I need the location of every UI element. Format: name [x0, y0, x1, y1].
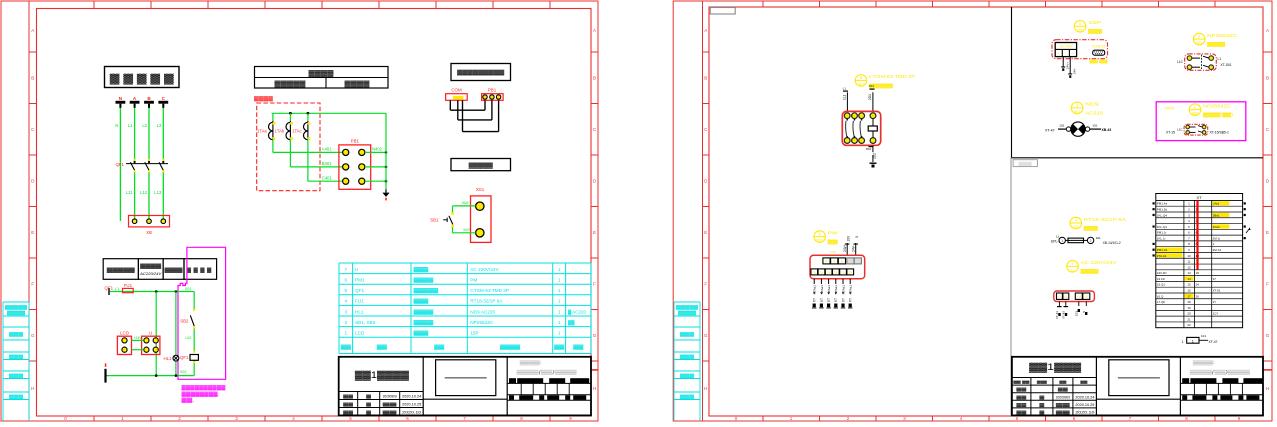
svg-text:L1C: L1C [1177, 128, 1183, 132]
svg-text:18: 18 [1196, 271, 1200, 275]
svg-text:B: B [593, 75, 596, 80]
svg-text:F: F [593, 281, 596, 286]
svg-text:13: 13 [1187, 271, 1191, 275]
svg-text:1KL.Q4: 1KL.Q4 [1157, 213, 1168, 217]
svg-text:RT18-32/1P 6A: RT18-32/1P 6A [470, 299, 503, 304]
svg-text:PB1: PB1 [488, 88, 497, 93]
svg-text:15P: 15P [470, 331, 478, 336]
svg-text:B: B [704, 75, 707, 80]
svg-text:1: 1 [1182, 340, 1184, 344]
svg-text:20200909: 20200909 [383, 394, 397, 398]
svg-text:20200909: 20200909 [1056, 396, 1070, 400]
svg-text:1L1: 1L1 [843, 94, 847, 100]
svg-text:B: B [31, 75, 34, 80]
svg-text:▓▓: ▓▓ [1059, 380, 1067, 384]
svg-text:1KL.Q1: 1KL.Q1 [1157, 225, 1168, 229]
svg-text:24V-: 24V- [851, 245, 855, 252]
svg-text:ND9 AC220: ND9 AC220 [470, 309, 495, 314]
svg-text:QF1: QF1 [858, 82, 865, 86]
svg-text:XT: XT [820, 298, 824, 302]
svg-text:▓▓▓: ▓▓▓ [1037, 380, 1048, 384]
svg-text:1: 1 [558, 267, 561, 272]
svg-text:2Ca1: 2Ca1 [1213, 225, 1221, 229]
svg-text:+: + [1072, 52, 1074, 56]
svg-text:N: N [115, 123, 118, 128]
svg-text:PM: PM [470, 278, 477, 283]
svg-text:7: 7 [344, 267, 347, 272]
svg-text:▓▓▓▓▓: ▓▓▓▓▓ [414, 287, 439, 294]
svg-text:1CY: 1CY [1213, 312, 1219, 316]
svg-text:101: 101 [1092, 124, 1097, 128]
svg-text:▓▓▓▓: ▓▓▓▓ [414, 308, 434, 315]
svg-text:AC 220V/24V: AC 220V/24V [1081, 260, 1117, 265]
svg-text:▓▓ ▓▓: ▓▓ ▓▓ [1090, 59, 1109, 64]
svg-text:1M.1r: 1M.1r [1213, 236, 1221, 240]
svg-text:FU1: FU1 [355, 299, 364, 304]
svg-text:6: 6 [344, 278, 347, 283]
svg-text:L12: L12 [140, 190, 148, 195]
svg-text:15P: 15P [1088, 20, 1101, 25]
svg-text:102: 102 [1059, 124, 1064, 128]
svg-text:HL1: HL1 [1074, 110, 1080, 114]
svg-text:L4a1: L4a1 [1213, 202, 1220, 206]
svg-text:X01: X01 [185, 287, 192, 291]
svg-text:QF1: QF1 [355, 288, 365, 293]
svg-text:B401: B401 [322, 161, 332, 166]
svg-text:XS1: XS1 [476, 187, 485, 192]
svg-text:L5.Q1: L5.Q1 [1157, 283, 1166, 287]
svg-text:L1: L1 [128, 123, 133, 128]
svg-text:▓ ▓ ▓ ▓ ▓: ▓ ▓ ▓ ▓ ▓ [110, 73, 175, 84]
svg-text:XB: XB [146, 230, 152, 235]
svg-text:10: 10 [1196, 254, 1200, 258]
svg-text:5: 5 [855, 236, 859, 238]
svg-text:PM: PM [830, 250, 835, 254]
svg-text:1Y: 1Y [1213, 300, 1217, 304]
svg-text:SB1: SB1 [430, 218, 439, 223]
svg-text:2020.10.24: 2020.10.24 [1075, 396, 1094, 400]
svg-text:L: L [1058, 295, 1060, 299]
svg-text:L02: L02 [185, 336, 191, 340]
svg-text:PM1.A1: PM1.A1 [1157, 248, 1168, 252]
svg-text:1: 1 [1061, 239, 1063, 243]
svg-text:+24V: +24V [134, 336, 143, 340]
svg-text:DC 24V: DC 24V [1060, 45, 1073, 49]
svg-text:NP2554ZC: NP2554ZC [470, 320, 494, 325]
svg-text:XT: XT [834, 298, 838, 302]
svg-text:F: F [704, 281, 707, 286]
svg-text:FU1: FU1 [124, 283, 133, 288]
svg-text:1a: 1a [827, 271, 831, 275]
svg-text:21: 21 [1187, 317, 1191, 321]
svg-text:XT-15/1: XT-15/1 [1221, 63, 1232, 67]
svg-text:SB2: SB2 [180, 318, 189, 323]
svg-text:11: 11 [1187, 260, 1190, 264]
svg-text:SB1: SB1 [1196, 41, 1203, 45]
svg-text:1: 1 [558, 288, 561, 293]
svg-text:PM1.4a: PM1.4a [1157, 202, 1168, 206]
svg-text:E: E [31, 230, 34, 235]
svg-text:L6.Q: L6.Q [1157, 294, 1164, 298]
svg-text:▓▓▓▓: ▓▓▓▓ [140, 263, 162, 270]
svg-text:HL1: HL1 [355, 309, 364, 314]
svg-text:▓▓▓▓: ▓▓▓▓ [414, 319, 434, 326]
svg-text:L1C: L1C [1177, 60, 1184, 64]
svg-text:▓▓▓▓: ▓▓▓▓ [187, 267, 214, 274]
svg-text:A401: A401 [322, 147, 332, 152]
svg-text:AC220: AC220 [1085, 110, 1104, 115]
svg-text:XT-47: XT-47 [1209, 340, 1218, 344]
svg-text:PM1.1r: PM1.1r [1157, 231, 1167, 235]
svg-text:PM1: PM1 [355, 278, 365, 283]
svg-text:103: 103 [847, 236, 851, 242]
svg-text:XT: XT [849, 298, 853, 302]
svg-text:▓▓: ▓▓ [1080, 380, 1088, 384]
svg-text:26: 26 [1196, 294, 1200, 298]
svg-text:XT: XT [813, 298, 817, 302]
svg-text:NP2554ZC: NP2554ZC [1207, 33, 1237, 38]
svg-text:X02: X02 [180, 370, 187, 374]
svg-text:+: + [1058, 52, 1060, 56]
svg-text:H: H [704, 386, 707, 391]
svg-text:E: E [704, 230, 707, 235]
svg-text:1: 1 [558, 320, 561, 325]
svg-text:A: A [593, 28, 596, 33]
svg-text:3: 3 [344, 309, 347, 314]
svg-text:24: 24 [1196, 283, 1200, 287]
svg-text:1: 1 [1192, 339, 1194, 343]
svg-text:1KL.1r: 1KL.1r [1157, 236, 1166, 240]
svg-text:H: H [31, 386, 34, 391]
svg-text:A: A [31, 28, 34, 33]
svg-text:12: 12 [1187, 265, 1191, 269]
svg-text:18: 18 [1187, 300, 1191, 304]
svg-text:24V+: 24V+ [1066, 62, 1070, 69]
svg-text:QF1: QF1 [180, 355, 189, 360]
svg-text:▓▓▓▓: ▓▓▓▓ [500, 344, 521, 351]
svg-text:▓▓: ▓▓ [573, 344, 584, 351]
svg-text:2020.10: 2020.10 [402, 410, 421, 414]
svg-text:1: 1 [558, 331, 561, 336]
svg-text:1a: 1a [820, 271, 824, 275]
svg-text:1a: 1a [812, 271, 816, 275]
svg-text:1TAc: 1TAc [292, 129, 301, 134]
svg-text:10: 10 [1187, 254, 1191, 258]
svg-text:▓▓: ▓▓ [434, 344, 445, 351]
svg-text:1: 1 [344, 331, 347, 336]
svg-text:XB-43: XB-43 [1102, 128, 1112, 132]
svg-text:▓▓: ▓▓ [377, 344, 388, 351]
svg-text:C401: C401 [322, 175, 333, 180]
svg-text:X06: X06 [462, 200, 470, 205]
svg-text:LCD: LCD [1077, 28, 1084, 32]
svg-text:▓▓1▓▓▓: ▓▓1▓▓▓ [1029, 362, 1082, 373]
svg-text:101: 101 [1096, 236, 1101, 240]
svg-text:L2: L2 [142, 123, 147, 128]
svg-text:24V+: 24V+ [843, 244, 847, 252]
svg-text:14: 14 [1187, 277, 1191, 281]
svg-text:▒▒▒: ▒▒▒ [1019, 161, 1032, 166]
svg-text:1a: 1a [841, 271, 845, 275]
svg-text:+: + [849, 260, 851, 264]
svg-text:A: A [704, 28, 707, 33]
svg-text:QF1: QF1 [115, 162, 124, 167]
svg-text:37: 37 [1213, 277, 1217, 281]
svg-text:H: H [1266, 386, 1269, 391]
svg-text:NP2554ZC: NP2554ZC [1203, 104, 1231, 109]
svg-text:19: 19 [1187, 306, 1191, 310]
svg-text:▓▓: ▓▓ [554, 344, 565, 351]
svg-text:AC 220V/24V: AC 220V/24V [470, 267, 499, 272]
svg-text:16: 16 [1187, 288, 1191, 292]
svg-text:2: 2 [344, 320, 347, 325]
svg-text:RT18-32/1P 6A: RT18-32/1P 6A [1084, 217, 1126, 222]
svg-text:17: 17 [1187, 294, 1191, 298]
svg-text:L3: L3 [157, 123, 162, 128]
svg-text:XT: XT [1196, 195, 1202, 200]
svg-text:XT-47: XT-47 [1045, 129, 1055, 133]
svg-text:▓▓▓▓: ▓▓▓▓ [309, 70, 335, 77]
svg-text:G: G [593, 333, 597, 338]
svg-text:A: A [1266, 28, 1269, 33]
svg-text:COM: COM [451, 88, 462, 93]
svg-text:15: 15 [1187, 283, 1191, 287]
svg-text:XT-15: XT-15 [1166, 131, 1175, 135]
svg-text:QF1: QF1 [105, 286, 114, 291]
svg-text:X07: X07 [463, 227, 471, 232]
svg-text:PM1: PM1 [816, 239, 823, 243]
svg-text:F: F [31, 281, 34, 286]
svg-text:E: E [593, 230, 596, 235]
svg-text:1TAb: 1TAb [275, 129, 285, 134]
svg-text:L13: L13 [154, 190, 162, 195]
svg-text:11: 11 [1056, 235, 1059, 239]
svg-text:L1: L1 [115, 287, 119, 291]
svg-text:▓▓▓▓▓: ▓▓▓▓▓ [275, 80, 307, 87]
svg-text:+V: +V [1077, 295, 1082, 299]
svg-text:L1: L1 [843, 87, 847, 91]
svg-text:L11: L11 [126, 190, 133, 195]
svg-text:▓▓▓: ▓▓▓ [414, 330, 430, 337]
svg-text:1TAa: 1TAa [257, 129, 267, 134]
svg-text:▓▓▓: ▓▓▓ [414, 298, 430, 305]
svg-text:SB1, SB2: SB1, SB2 [355, 320, 376, 325]
svg-text:2D2: 2D2 [873, 153, 877, 159]
svg-text:1: 1 [558, 309, 561, 314]
svg-text:LCD: LCD [355, 331, 365, 336]
svg-text:H: H [593, 386, 596, 391]
svg-text:LCD: LCD [120, 330, 129, 335]
svg-text:L7.Q6: L7.Q6 [1157, 300, 1166, 304]
svg-text:X01: X01 [869, 84, 875, 88]
svg-text:1a: 1a [848, 271, 852, 275]
svg-text:FU1: FU1 [1073, 225, 1080, 229]
svg-text:5: 5 [344, 288, 347, 293]
svg-text:XS05: XS05 [1164, 106, 1175, 111]
svg-text:G: G [1266, 333, 1270, 338]
svg-text:▓▓1▓▓▓▓: ▓▓1▓▓▓▓ [355, 370, 410, 381]
svg-text:1a: 1a [834, 271, 838, 275]
svg-text:E: E [1266, 230, 1269, 235]
svg-text:ND9: ND9 [1085, 102, 1100, 107]
svg-text:▓▓▓▓: ▓▓▓▓ [414, 277, 434, 284]
svg-text:AC220/24V: AC220/24V [139, 271, 161, 276]
svg-text:2D1: 2D1 [868, 94, 872, 100]
svg-text:L9.1D: L9.1D [1157, 277, 1166, 281]
svg-text:2020.10.25: 2020.10.25 [1075, 403, 1094, 407]
svg-text:N402: N402 [372, 147, 383, 152]
svg-text:▓▓▓▓▓: ▓▓▓▓▓ [107, 267, 136, 274]
svg-text:XB-14/101-2: XB-14/101-2 [1103, 241, 1121, 245]
svg-text:2020.10.24: 2020.10.24 [402, 394, 421, 398]
svg-text:2TA.A1: 2TA.A1 [1157, 254, 1167, 258]
svg-text:1: 1 [558, 278, 561, 283]
svg-text:XT: XT [827, 298, 831, 302]
svg-text:CYSM-63 TMD 3P: CYSM-63 TMD 3P [470, 288, 509, 293]
svg-text:101: 101 [1201, 334, 1206, 338]
svg-text:▓▓▓▓: ▓▓▓▓ [165, 267, 184, 274]
svg-text:G: G [704, 333, 708, 338]
svg-text:XT-15/SB5-1: XT-15/SB5-1 [1210, 131, 1230, 135]
svg-text:CYSM-63 TMD 3P: CYSM-63 TMD 3P [869, 74, 915, 79]
svg-text:24V-: 24V- [1073, 68, 1077, 74]
svg-text:▓▓: ▓▓ [341, 344, 352, 351]
svg-text:PM1.5d: PM1.5d [1157, 207, 1168, 211]
svg-text:N: N [1065, 295, 1068, 299]
svg-text:U: U [149, 330, 152, 335]
svg-text:-V: -V [1085, 295, 1089, 299]
svg-text:2Ba1: 2Ba1 [1213, 213, 1220, 217]
svg-text:▓▓▓▓▓▓▓▓▓: ▓▓▓▓▓▓▓▓▓ [457, 69, 504, 76]
svg-text:2: 2 [1090, 239, 1092, 243]
svg-text:1: 1 [558, 299, 561, 304]
svg-text:XT: XT [841, 298, 845, 302]
svg-text:XT.A1: XT.A1 [1213, 288, 1221, 292]
svg-text:2M.A1: 2M.A1 [1213, 248, 1222, 252]
svg-text:20: 20 [1187, 312, 1191, 316]
svg-text:PM: PM [828, 230, 839, 235]
svg-text:B: B [1266, 75, 1269, 80]
svg-text:PB1: PB1 [351, 139, 360, 144]
svg-text:L1: L1 [1218, 57, 1222, 61]
svg-text:▓▓▓▓: ▓▓▓▓ [345, 80, 371, 87]
svg-text:24V.4D: 24V.4D [1157, 271, 1168, 275]
svg-text:F: F [1266, 281, 1269, 286]
svg-text:HL1: HL1 [163, 356, 172, 361]
svg-text:COM1/2: COM1/2 [1092, 45, 1105, 49]
svg-text:▓▓ ▓▓: ▓▓ ▓▓ [1013, 380, 1030, 384]
svg-text:2020.10: 2020.10 [1075, 411, 1094, 415]
svg-text:G: G [31, 333, 35, 338]
svg-text:2020.10.25: 2020.10.25 [402, 402, 421, 406]
svg-text:▓▓▓: ▓▓▓ [414, 266, 430, 273]
svg-text:SB5: SB5 [1192, 112, 1199, 116]
svg-text:22: 22 [1187, 323, 1191, 327]
svg-text:4: 4 [344, 299, 347, 304]
svg-text:▓▓▓▓: ▓▓▓▓ [469, 162, 493, 169]
svg-text:X02: X02 [866, 147, 872, 151]
